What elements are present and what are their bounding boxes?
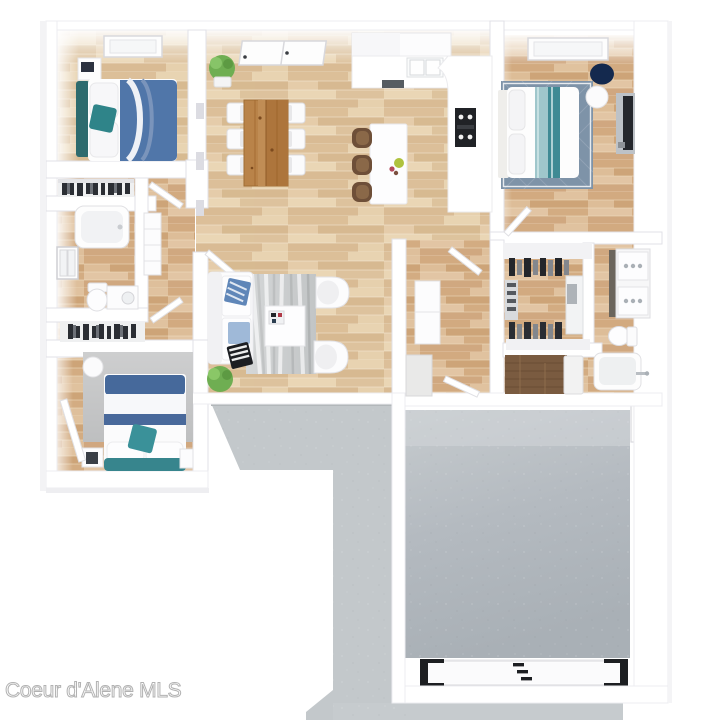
- svg-text:Coeur d'Alene MLS: Coeur d'Alene MLS: [5, 679, 182, 702]
